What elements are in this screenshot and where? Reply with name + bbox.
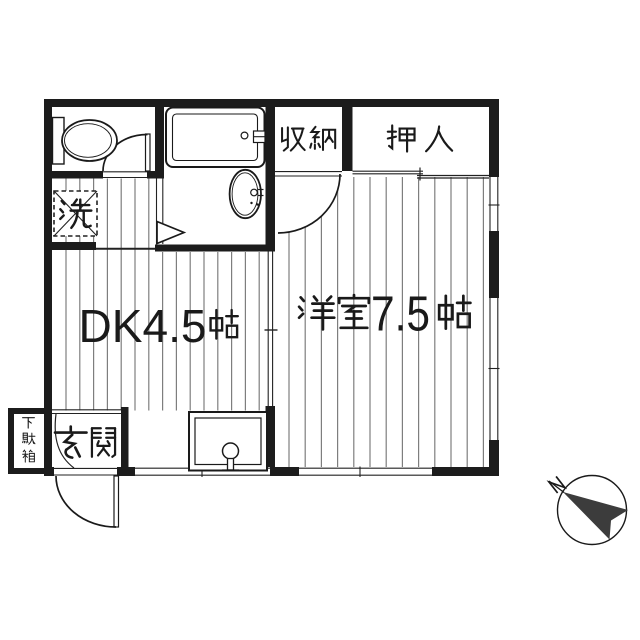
svg-text:7.5: 7.5 [371,287,430,342]
svg-text:DK4.5: DK4.5 [79,300,207,352]
